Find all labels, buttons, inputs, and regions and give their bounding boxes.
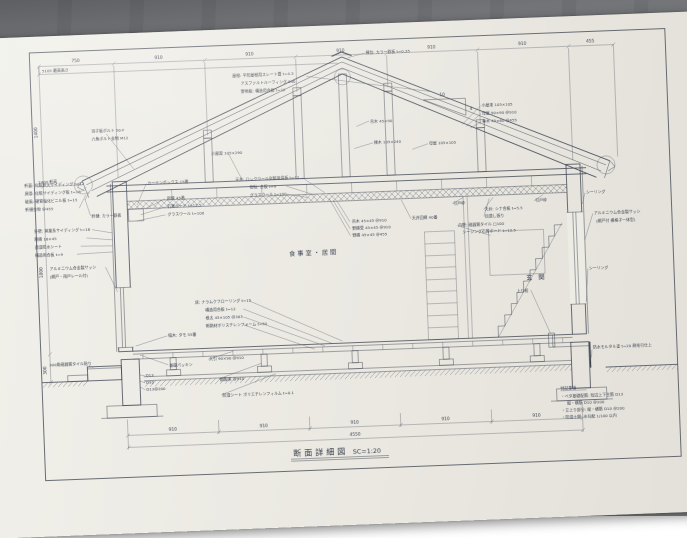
label-gutter: 軒樋: カラー鉄板 xyxy=(91,213,121,219)
label-ceiling-1: 捨貼: 合板 t=9 xyxy=(249,184,276,190)
notes-block: 特記事項 ・ベタ基礎配筋: 短辺上下主筋 D13 縦・横筋 D10 @200 ・… xyxy=(560,383,625,419)
dim-bottom-4: 910 xyxy=(532,413,541,419)
dim-top-0: 750 xyxy=(71,58,80,64)
dim-left-1: 1800 xyxy=(38,267,44,278)
label-rebar-0: D13 xyxy=(146,372,155,377)
dimension-bottom: 910 910 910 910 910 4550 xyxy=(125,402,585,450)
label-floor-post: 鋼製束 @910 xyxy=(220,376,245,382)
label-ridge: 棟包: カラー鉄板 t=0.35 xyxy=(365,48,410,55)
label-furring-2: 野縁 45×45 @455 xyxy=(352,231,387,237)
label-sealing-bottom: シーリング xyxy=(589,265,609,271)
dimension-top: 750 910 910 910 910 910 455 xyxy=(37,37,620,180)
pitch-run: 10 xyxy=(439,92,445,98)
label-eave-3: 軒樋金物 @455 xyxy=(25,206,54,212)
label-wall-left-0: 外壁: 窯業系サイディング t=16 xyxy=(34,227,91,234)
label-floor-0: 床: ナラムクフローリング t=15 xyxy=(195,298,252,305)
label-trim-1: 石膏ボード t=12.5 xyxy=(167,202,202,208)
label-eave-1: 鼻隠: 化粧サイディング板 t=16 xyxy=(25,189,82,196)
label-sash-left-1: (網戸・雨戸レール付) xyxy=(50,273,89,279)
title-block: 断面詳細図 SC=1:20 xyxy=(291,444,389,461)
label-trim-0: 廻縁 45番 xyxy=(167,195,185,201)
dim-left-2: 300 xyxy=(42,366,48,375)
dim-bottom-2: 910 xyxy=(350,420,359,426)
dim-bottom-3: 910 xyxy=(441,416,450,422)
label-wall-left-2: 透湿防水シート xyxy=(35,244,63,250)
label-door-frame-b: 引戸枠 xyxy=(535,197,547,202)
label-munagi: 棟木 105×240 xyxy=(374,139,402,145)
section-drawing: 750 910 910 910 910 910 455 5105 最高高さ 24… xyxy=(0,12,687,538)
label-wall-tile-0: 内壁: 磁器質タイル □100 xyxy=(458,221,505,228)
pitch-rise: 4 xyxy=(470,106,473,112)
label-ceiling-trim: 天井回縁 40番 xyxy=(412,214,438,220)
dim-bottom-1: 910 xyxy=(260,423,269,429)
notes-line-3: ・立上り部分: 縦・横筋 D10 @200 xyxy=(561,405,625,412)
label-ceiling-right-1: 目透し張り xyxy=(485,213,505,219)
room-living: 食事室・居間 xyxy=(289,248,338,258)
notes-title: 特記事項 xyxy=(560,385,576,391)
notes-line-2: 縦・横筋 D10 @200 xyxy=(567,399,605,405)
label-mortar: 防水モルタル塗 t=20 刷毛引仕上 xyxy=(593,342,652,349)
notes-line-4: ・防湿土間: 水勾配 1/100 以内 xyxy=(562,413,617,420)
dim-left-0: 1400 xyxy=(33,127,39,138)
label-furring-0: 吊木 45×45 @910 xyxy=(352,217,387,223)
label-wall-left-3: 構造用合板 t=9 xyxy=(35,252,64,258)
notes-line-1: ・ベタ基礎配筋: 短辺上下主筋 D13 xyxy=(561,391,624,398)
dim-top-5: 910 xyxy=(518,41,527,47)
stairs-entrance xyxy=(423,192,589,352)
label-roof-0: 屋根: 平形屋根用スレート葺 t=4.5 xyxy=(232,71,294,78)
label-members-right-1: 母屋 90×90 @910 xyxy=(482,109,517,115)
label-trim-2: グラスウール t=100 xyxy=(167,210,204,216)
label-members-right-0: 小屋束 105×105 xyxy=(481,101,513,107)
leader-lines xyxy=(70,45,600,401)
dim-top-6: 455 xyxy=(586,38,595,44)
label-roof-1: アスファルトルーフィング 940 xyxy=(240,79,296,86)
label-ceiling-right-0: 天井: シナ合板 t=5.5 xyxy=(484,205,523,211)
curtain-box xyxy=(128,209,143,222)
drawing-sheet: 750 910 910 910 910 910 455 5105 最高高さ 24… xyxy=(0,12,687,538)
label-rebar-1: D10 xyxy=(146,379,155,384)
label-floor-3: 断熱材ポリスチレンフォーム t=50 xyxy=(206,321,268,328)
label-roof-2: 野地板: 構造用合板 t=12 xyxy=(241,87,286,94)
label-floor-1: 構造用合板 t=12 xyxy=(205,306,236,312)
pitch-triangle xyxy=(423,98,466,117)
terrace xyxy=(41,366,122,388)
dim-top-1: 910 xyxy=(154,55,163,61)
dim-top-2: 910 xyxy=(245,51,254,57)
label-ceiling-0: 天井: ロックウール化粧吸音板 t=12 xyxy=(235,175,300,182)
label-door-frame-a: 引戸枠 xyxy=(453,200,465,205)
label-tile-floor: 300角磁器質タイル貼り xyxy=(49,361,92,368)
label-floor-2: 根太 45×105 @303 xyxy=(205,314,243,320)
label-eave-2: 破風: 硬質塩化ビニル板 t=15 xyxy=(25,197,78,204)
room-entrance: 玄 関 xyxy=(526,273,547,282)
roof-structure xyxy=(70,42,616,199)
label-eave-0: 軒裏: 化粧軒天サイディング t=12 xyxy=(24,181,85,188)
label-sash-right-1: (網戸付 横格子一体型) xyxy=(596,217,636,224)
room-kamachi: 上り框 xyxy=(517,288,529,293)
label-rebar-2: D13@200 xyxy=(146,386,166,392)
label-packing: 基礎パッキン xyxy=(169,362,193,368)
label-sash-right-0: アルミニウム合金製サッシ xyxy=(594,209,641,216)
label-sealing-top: シーリング xyxy=(586,189,606,195)
label-furring-1: 野縁受 45×45 @910 xyxy=(352,224,391,230)
label-tsurigi: 吊木 45×90 xyxy=(370,118,393,124)
label-bolts-1: 六角ボルト金物 M12 xyxy=(92,135,129,141)
dim-top-4: 910 xyxy=(427,44,436,50)
dim-bottom-0: 910 xyxy=(169,427,178,433)
label-wall-tile-1: シージング石膏ボード t=12.5 xyxy=(462,227,516,234)
label-bolts-0: 羽子板ボルト 50-F xyxy=(91,127,125,133)
dim-max-height: 5105 最高高さ xyxy=(42,67,69,73)
drawing-title: 断面詳細図 xyxy=(293,446,348,458)
label-baseboard: 幅木: タモ 55番 xyxy=(168,332,196,338)
floor-foundation xyxy=(99,330,679,418)
label-moya: 母屋 105×105 xyxy=(429,140,457,146)
label-moisture: 防湿シート ポリエチレンフィルム t=0.1 xyxy=(222,390,294,398)
label-sleeper: 大引 90×90 @910 xyxy=(209,355,244,361)
label-koyabari: 小屋梁 105×290 xyxy=(211,150,243,156)
label-curtain-box: カーテンボックス 15番 xyxy=(147,179,188,186)
dim-bottom-total: 4550 xyxy=(350,432,361,438)
annotations: 屋根: 平形屋根用スレート葺 t=4.5 アスファルトルーフィング 940 野地… xyxy=(20,39,654,405)
label-sash-left-0: アルミニウム合金製サッシ xyxy=(49,265,96,272)
label-wall-left-1: 胴縁 18×45 xyxy=(34,236,57,242)
drawing-scale: SC=1:20 xyxy=(353,447,382,456)
